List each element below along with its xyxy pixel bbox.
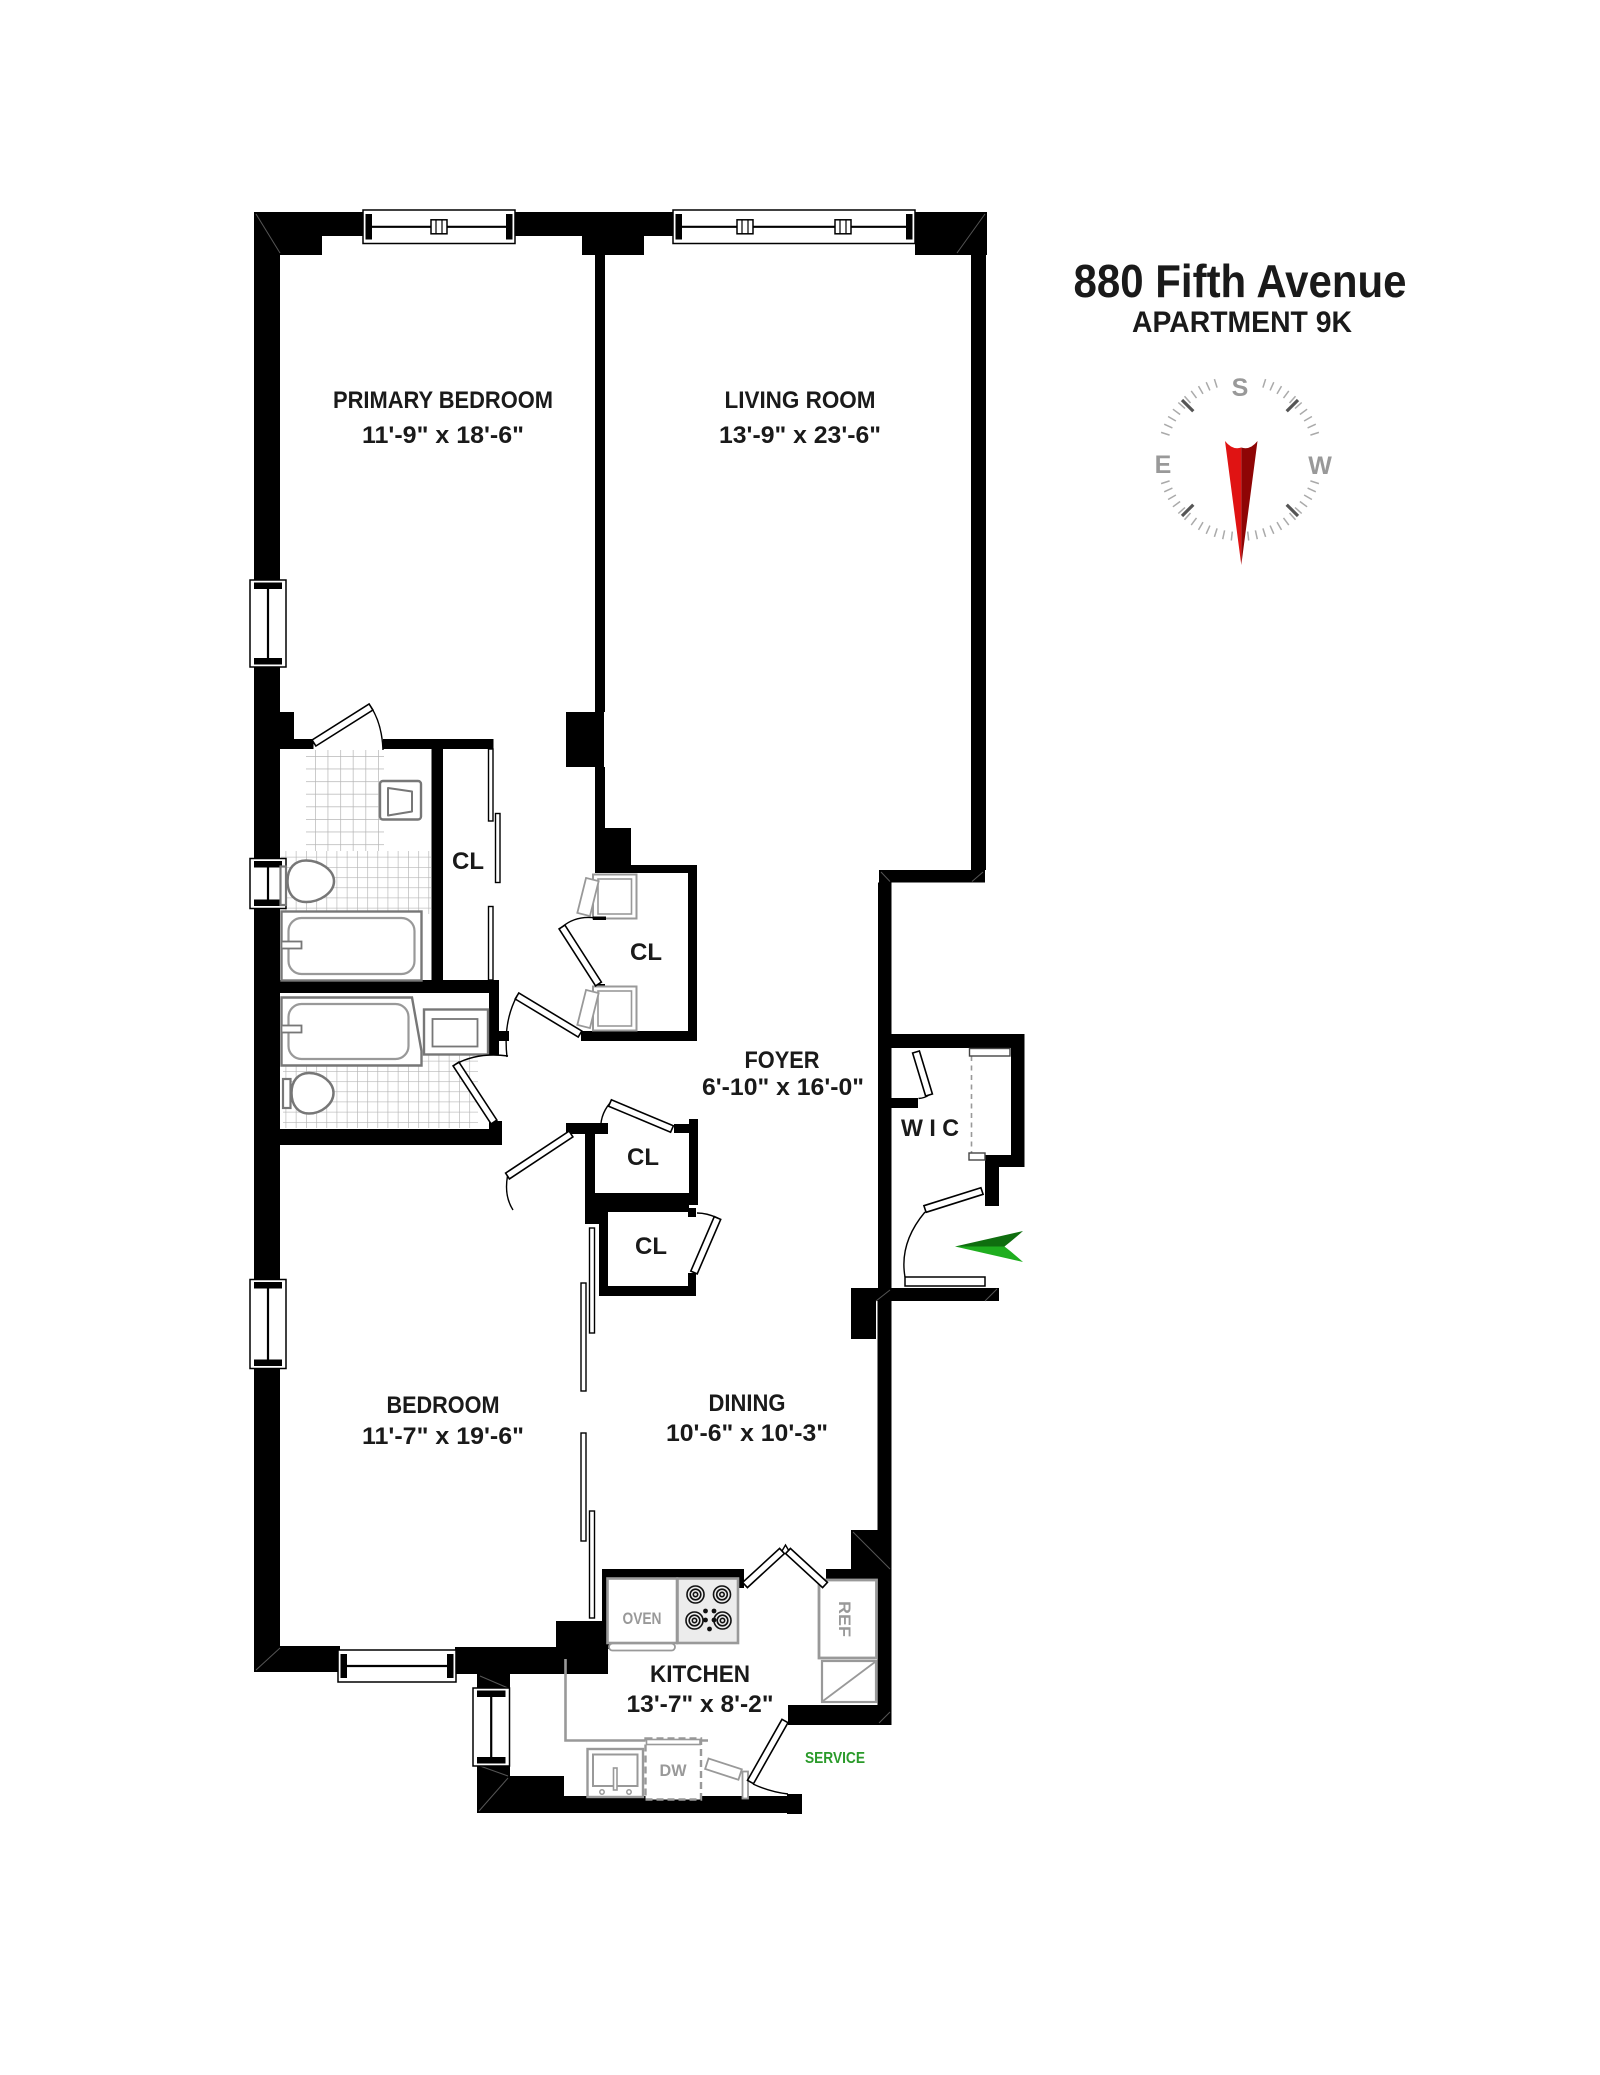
svg-text:DW: DW bbox=[660, 1761, 688, 1780]
svg-text:CL: CL bbox=[630, 939, 662, 966]
svg-text:S: S bbox=[1232, 374, 1249, 402]
svg-text:CL: CL bbox=[627, 1144, 659, 1171]
svg-text:880 Fifth Avenue: 880 Fifth Avenue bbox=[1074, 255, 1407, 307]
svg-text:E: E bbox=[1155, 451, 1172, 479]
svg-text:SERVICE: SERVICE bbox=[805, 1750, 865, 1767]
svg-text:KITCHEN: KITCHEN bbox=[650, 1661, 750, 1688]
svg-text:OVEN: OVEN bbox=[623, 1609, 662, 1628]
svg-text:13'-7" x 8'-2": 13'-7" x 8'-2" bbox=[627, 1691, 774, 1718]
svg-text:13'-9" x 23'-6": 13'-9" x 23'-6" bbox=[719, 422, 881, 449]
svg-text:PRIMARY BEDROOM: PRIMARY BEDROOM bbox=[333, 387, 553, 414]
svg-text:W I C: W I C bbox=[901, 1115, 959, 1142]
svg-text:DINING: DINING bbox=[709, 1390, 786, 1417]
svg-text:LIVING ROOM: LIVING ROOM bbox=[725, 387, 876, 414]
svg-text:10'-6" x 10'-3": 10'-6" x 10'-3" bbox=[666, 1420, 828, 1447]
svg-text:11'-7" x 19'-6": 11'-7" x 19'-6" bbox=[362, 1423, 524, 1450]
svg-text:BEDROOM: BEDROOM bbox=[387, 1392, 500, 1419]
svg-text:11'-9" x 18'-6": 11'-9" x 18'-6" bbox=[362, 422, 524, 449]
svg-text:W: W bbox=[1308, 452, 1332, 480]
svg-text:REF: REF bbox=[835, 1601, 854, 1637]
svg-text:APARTMENT 9K: APARTMENT 9K bbox=[1132, 306, 1352, 339]
svg-text:CL: CL bbox=[635, 1233, 667, 1260]
svg-text:FOYER: FOYER bbox=[745, 1047, 820, 1074]
svg-text:CL: CL bbox=[452, 848, 484, 875]
svg-text:6'-10" x 16'-0": 6'-10" x 16'-0" bbox=[702, 1074, 864, 1101]
